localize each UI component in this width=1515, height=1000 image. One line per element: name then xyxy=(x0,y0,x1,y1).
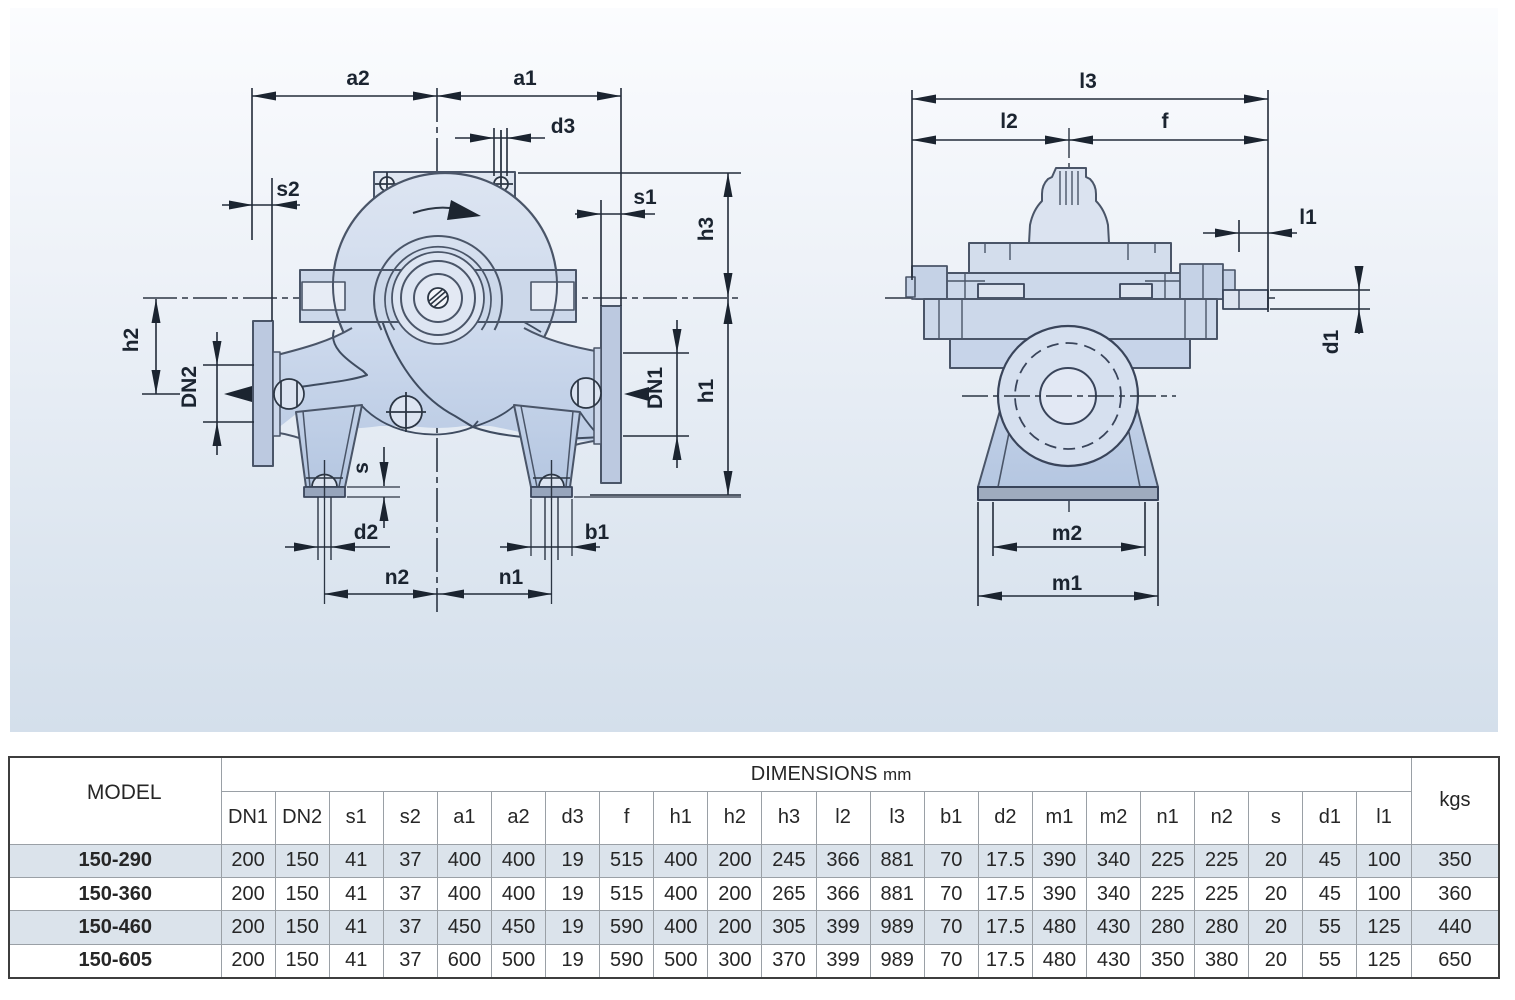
svg-text:n2: n2 xyxy=(385,566,410,589)
svg-text:l1: l1 xyxy=(1299,206,1317,229)
svg-text:s2: s2 xyxy=(276,178,299,201)
svg-text:a1: a1 xyxy=(513,67,537,90)
svg-text:n1: n1 xyxy=(499,566,524,589)
svg-text:d1: d1 xyxy=(1320,329,1343,354)
svg-text:s1: s1 xyxy=(633,186,657,209)
svg-text:h3: h3 xyxy=(695,217,718,242)
svg-text:b1: b1 xyxy=(585,521,610,544)
svg-text:DN2: DN2 xyxy=(178,366,201,408)
svg-text:f: f xyxy=(1162,110,1170,133)
svg-text:d2: d2 xyxy=(354,521,379,544)
svg-text:l2: l2 xyxy=(1000,110,1018,133)
svg-text:m2: m2 xyxy=(1052,522,1082,545)
svg-text:s: s xyxy=(350,462,373,474)
svg-text:h2: h2 xyxy=(120,328,143,353)
svg-text:d3: d3 xyxy=(551,115,576,138)
svg-text:m1: m1 xyxy=(1052,572,1083,595)
svg-text:a2: a2 xyxy=(346,67,369,90)
svg-text:l3: l3 xyxy=(1079,70,1097,93)
svg-text:h1: h1 xyxy=(695,378,718,403)
